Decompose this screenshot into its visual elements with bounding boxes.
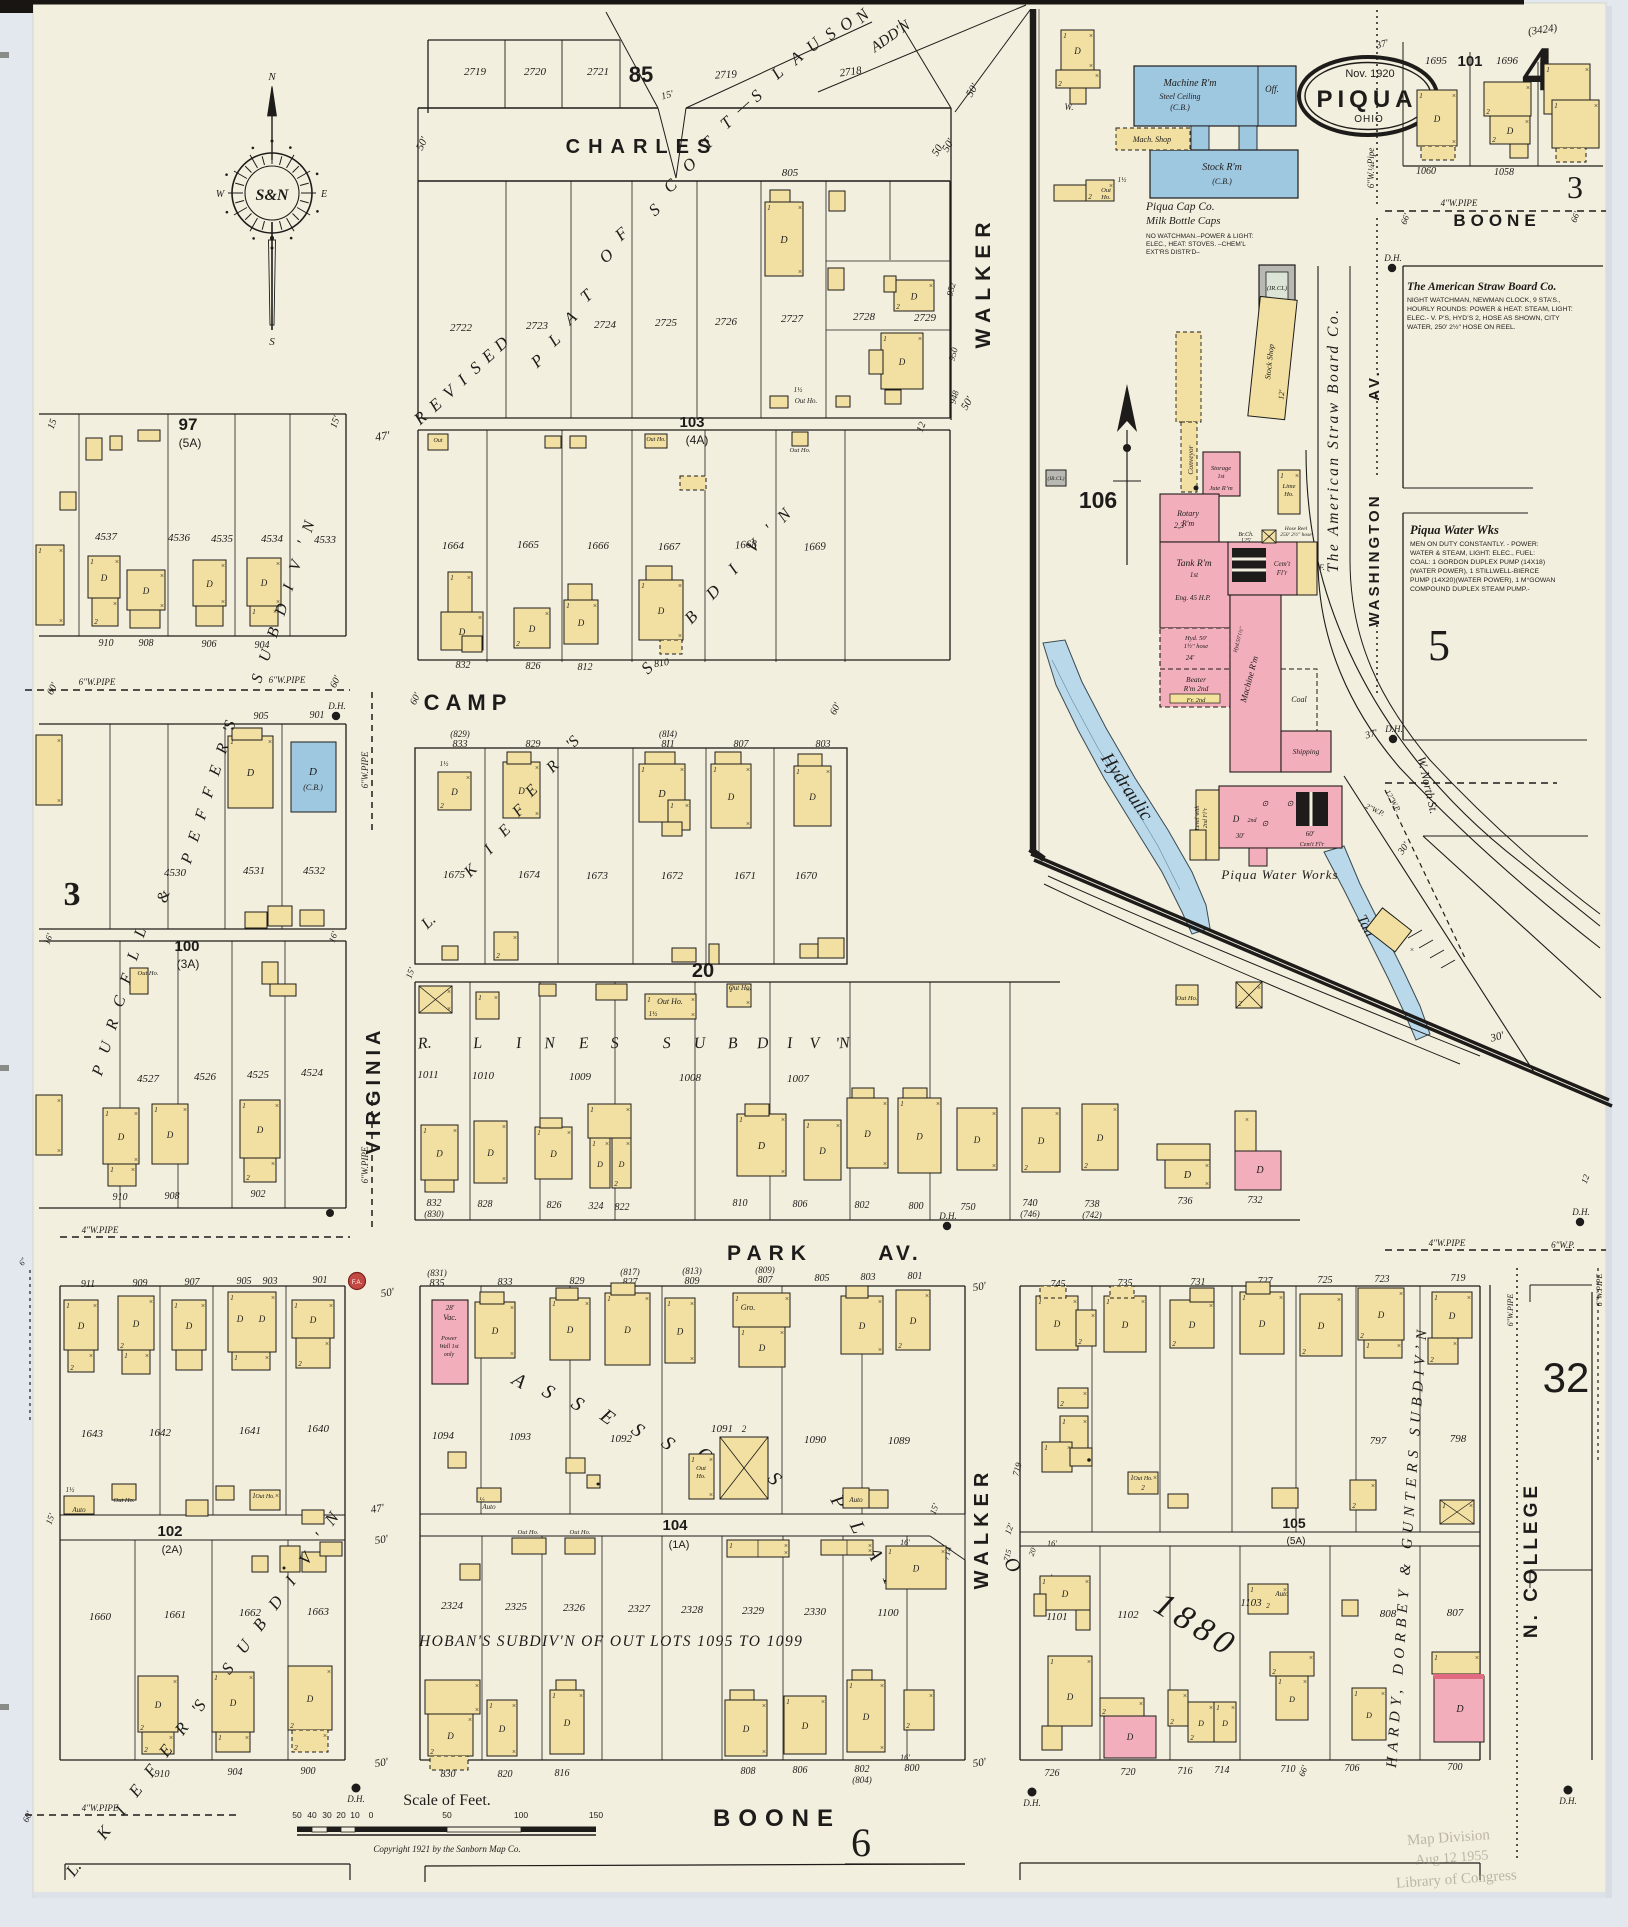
svg-text:6"W.PIPE: 6"W.PIPE <box>1506 1294 1515 1327</box>
svg-text:×: × <box>183 1105 187 1114</box>
svg-text:×: × <box>93 1301 97 1310</box>
svg-text:47': 47' <box>374 428 391 444</box>
svg-text:×: × <box>115 557 119 566</box>
svg-text:×: × <box>691 1010 695 1019</box>
svg-text:2nd Fl’r: 2nd Fl’r <box>1203 807 1209 828</box>
svg-text:822: 822 <box>615 1202 630 1213</box>
svg-text:×: × <box>567 1128 571 1137</box>
svg-text:D: D <box>229 1698 237 1708</box>
svg-text:D: D <box>1188 1320 1196 1330</box>
svg-text:×: × <box>1095 71 1099 80</box>
svg-text:×: × <box>512 1747 516 1756</box>
svg-text:2: 2 <box>496 952 500 960</box>
svg-text:Cem't: Cem't <box>1274 560 1291 568</box>
svg-text:832: 832 <box>456 660 471 671</box>
svg-text:807: 807 <box>758 1275 774 1286</box>
svg-text:×: × <box>323 1731 327 1740</box>
svg-text:Wall 1st: Wall 1st <box>439 1344 459 1350</box>
svg-text:D: D <box>1365 1711 1372 1720</box>
svg-text:×: × <box>1141 1297 1145 1306</box>
svg-text:(813): (813) <box>682 1266 702 1276</box>
svg-text:714: 714 <box>1215 1765 1230 1776</box>
svg-text:1: 1 <box>450 574 454 582</box>
svg-text:Out Ho.: Out Ho. <box>795 397 818 405</box>
svg-text:4536: 4536 <box>168 532 191 544</box>
svg-text:4524: 4524 <box>301 1067 324 1079</box>
svg-text:×: × <box>201 1301 205 1310</box>
svg-text:Auto: Auto <box>1274 1590 1289 1598</box>
svg-text:0: 0 <box>369 1810 374 1820</box>
svg-text:D: D <box>727 792 735 802</box>
svg-text:2,3: 2,3 <box>1174 521 1184 530</box>
svg-text:803: 803 <box>861 1272 876 1283</box>
svg-text:×: × <box>1091 1311 1095 1320</box>
svg-text:Out Ho.: Out Ho. <box>138 970 159 977</box>
svg-text:×: × <box>883 1159 887 1168</box>
svg-text:829: 829 <box>570 1276 585 1287</box>
svg-text:D: D <box>779 235 788 246</box>
svg-text:1695: 1695 <box>1425 55 1448 67</box>
svg-text:D.H.: D.H. <box>1384 724 1403 734</box>
svg-text:20: 20 <box>692 960 714 982</box>
svg-text:D.H.: D.H. <box>1022 1798 1041 1808</box>
svg-text:D: D <box>898 357 906 367</box>
svg-text:D: D <box>1506 126 1514 136</box>
svg-text:2725: 2725 <box>655 317 678 329</box>
svg-text:835: 835 <box>430 1278 445 1289</box>
svg-text:D: D <box>1258 1319 1266 1329</box>
svg-text:×: × <box>1399 1289 1403 1298</box>
svg-text:F.: F. <box>1318 563 1325 572</box>
svg-text:812: 812 <box>578 662 593 673</box>
svg-text:807: 807 <box>1447 1607 1464 1619</box>
svg-text:1663: 1663 <box>307 1606 330 1618</box>
svg-text:2325: 2325 <box>505 1601 528 1613</box>
svg-text:×: × <box>690 1354 694 1363</box>
svg-text:800: 800 <box>905 1763 920 1774</box>
svg-text:Out Ho.: Out Ho. <box>570 1529 591 1536</box>
svg-text:1696: 1696 <box>1496 55 1519 67</box>
svg-text:×: × <box>1073 1297 1077 1306</box>
svg-text:1: 1 <box>691 1456 695 1464</box>
svg-text:1: 1 <box>741 1329 745 1337</box>
svg-text:D: D <box>577 618 585 628</box>
svg-text:WASHINGTON: WASHINGTON <box>1366 493 1383 626</box>
svg-text:Copyright 1921 by the Sanborn: Copyright 1921 by the Sanborn Map Co. <box>373 1844 520 1854</box>
svg-text:×: × <box>57 736 61 745</box>
svg-text:1673: 1673 <box>586 870 609 882</box>
svg-text:1½: 1½ <box>649 1010 659 1018</box>
svg-text:903: 903 <box>263 1276 278 1287</box>
svg-text:1½: 1½ <box>66 1486 76 1494</box>
svg-text:×: × <box>1526 83 1530 92</box>
svg-text:×: × <box>626 1105 630 1114</box>
svg-text:2: 2 <box>1058 80 1062 88</box>
svg-text:738: 738 <box>1085 1199 1100 1210</box>
svg-text:×: × <box>468 1715 472 1724</box>
svg-text:D: D <box>657 606 665 616</box>
svg-text:Hyd. 50': Hyd. 50' <box>1184 635 1208 642</box>
svg-text:1007: 1007 <box>787 1073 810 1085</box>
svg-text:Conveyor: Conveyor <box>1186 445 1195 474</box>
svg-text:806: 806 <box>793 1199 808 1210</box>
svg-text:×: × <box>1205 1161 1209 1170</box>
svg-text:706: 706 <box>1345 1763 1360 1774</box>
svg-text:×: × <box>1153 1473 1157 1482</box>
svg-text:D: D <box>862 1712 870 1722</box>
svg-text:×: × <box>785 1294 789 1303</box>
svg-text:WALKER: WALKER <box>972 216 995 349</box>
svg-text:1: 1 <box>1546 66 1550 74</box>
svg-text:47': 47' <box>370 1502 386 1516</box>
svg-text:1: 1 <box>105 1110 109 1118</box>
svg-text:Lime: Lime <box>1282 483 1296 490</box>
svg-text:E: E <box>320 189 327 200</box>
svg-text:908: 908 <box>165 1191 180 1202</box>
svg-text:1: 1 <box>1434 1654 1438 1662</box>
svg-text:1674: 1674 <box>518 869 541 881</box>
svg-text:Cem't Fl'r: Cem't Fl'r <box>1300 842 1325 848</box>
svg-text:D: D <box>309 1315 317 1325</box>
svg-text:30': 30' <box>1235 832 1245 840</box>
svg-text:2: 2 <box>70 1364 74 1372</box>
svg-text:D: D <box>1066 1692 1074 1702</box>
svg-text:905: 905 <box>237 1276 252 1287</box>
svg-text:1669: 1669 <box>804 540 827 553</box>
svg-text:2: 2 <box>440 802 444 810</box>
svg-text:1: 1 <box>735 1295 739 1303</box>
svg-text:904: 904 <box>228 1767 243 1778</box>
svg-text:2: 2 <box>1024 1164 1028 1172</box>
svg-text:D: D <box>801 1721 809 1731</box>
svg-text:×: × <box>1475 1653 1479 1662</box>
svg-text:Power: Power <box>440 1336 457 1342</box>
svg-text:Storage: Storage <box>1211 465 1231 472</box>
svg-text:×: × <box>1083 1389 1087 1398</box>
svg-text:×: × <box>798 203 802 212</box>
svg-text:2723: 2723 <box>526 320 549 332</box>
svg-text:Out Ho.: Out Ho. <box>1133 1476 1152 1482</box>
svg-text:Scale of Feet.: Scale of Feet. <box>403 1792 491 1809</box>
svg-text:Gro.: Gro. <box>741 1303 756 1312</box>
svg-text:2329: 2329 <box>742 1605 765 1617</box>
svg-text:1: 1 <box>1044 1444 1048 1452</box>
svg-text:2327: 2327 <box>628 1603 651 1615</box>
svg-text:816: 816 <box>555 1768 570 1779</box>
svg-text:1: 1 <box>1434 1294 1438 1302</box>
svg-text:D: D <box>256 1125 264 1135</box>
svg-text:D: D <box>166 1130 174 1140</box>
svg-text:×: × <box>1231 1703 1235 1712</box>
svg-text:2: 2 <box>1172 1340 1176 1348</box>
svg-text:1: 1 <box>1216 1704 1220 1712</box>
svg-text:×: × <box>271 1293 275 1302</box>
svg-text:CAMP: CAMP <box>424 690 513 715</box>
svg-text:1010: 1010 <box>472 1070 495 1082</box>
svg-text:2: 2 <box>1102 1708 1106 1716</box>
svg-text:×: × <box>134 1155 138 1164</box>
svg-text:The American Straw Board Co.: The American Straw Board Co. <box>1407 281 1556 293</box>
svg-text:732: 732 <box>1248 1195 1263 1206</box>
svg-text:×: × <box>868 1546 872 1555</box>
svg-text:×: × <box>925 1291 929 1300</box>
svg-text:2: 2 <box>1486 108 1490 116</box>
svg-text:F.A.: F.A. <box>352 1280 363 1286</box>
svg-text:×: × <box>160 601 164 610</box>
svg-text:Auto: Auto <box>848 1496 863 1504</box>
svg-text:×: × <box>880 1743 884 1752</box>
svg-text:1640: 1640 <box>307 1423 330 1435</box>
svg-text:Tank R'm: Tank R'm <box>1176 559 1211 569</box>
svg-text:829: 829 <box>526 739 541 750</box>
svg-text:×: × <box>1257 983 1261 992</box>
svg-text:1: 1 <box>1366 1342 1370 1350</box>
svg-text:×: × <box>878 1297 882 1306</box>
svg-text:1: 1 <box>1278 1678 1282 1686</box>
svg-text:×: × <box>762 1747 766 1756</box>
svg-text:×: × <box>1452 91 1456 100</box>
svg-text:×: × <box>709 1490 713 1499</box>
svg-text:D: D <box>915 1132 923 1142</box>
svg-text:D: D <box>1053 1319 1061 1329</box>
svg-text:×: × <box>271 1159 275 1168</box>
svg-text:×: × <box>678 631 682 640</box>
svg-text:Out Ho.: Out Ho. <box>1177 995 1198 1002</box>
svg-text:2: 2 <box>144 1746 148 1754</box>
svg-text:VIRGINIA: VIRGINIA <box>363 1026 385 1155</box>
svg-text:×: × <box>325 1339 329 1348</box>
svg-text:EXT'RS DISTR'D–: EXT'RS DISTR'D– <box>1146 249 1200 256</box>
svg-text:×: × <box>746 998 750 1007</box>
svg-text:1: 1 <box>252 608 256 616</box>
svg-text:×: × <box>502 1174 506 1183</box>
svg-text:832: 832 <box>427 1198 442 1209</box>
svg-text:(809): (809) <box>755 1265 775 1275</box>
svg-text:×: × <box>1205 1179 1209 1188</box>
svg-text:4535: 4535 <box>211 533 234 545</box>
svg-text:D: D <box>1455 1704 1464 1715</box>
svg-text:D: D <box>1061 1589 1069 1599</box>
svg-text:2: 2 <box>294 1744 298 1752</box>
svg-text:32: 32 <box>1543 1354 1590 1401</box>
svg-text:Jute R’m: Jute R’m <box>1209 485 1233 492</box>
svg-text:CHARLES: CHARLES <box>566 136 719 158</box>
svg-text:D.H.: D.H. <box>938 1211 957 1221</box>
svg-text:731: 731 <box>1191 1277 1206 1288</box>
svg-text:D: D <box>566 1325 574 1335</box>
svg-text:Piqua Water Works: Piqua Water Works <box>1220 867 1338 882</box>
svg-text:D: D <box>676 1327 684 1337</box>
svg-text:1660: 1660 <box>89 1611 112 1623</box>
svg-text:902: 902 <box>251 1189 266 1200</box>
svg-text:10: 10 <box>350 1810 360 1820</box>
svg-text:WATER, 250′ 2½″ HOSE ON REEL.: WATER, 250′ 2½″ HOSE ON REEL. <box>1407 323 1516 331</box>
svg-text:324: 324 <box>588 1201 604 1212</box>
svg-text:D: D <box>486 1148 494 1158</box>
svg-text:(2A): (2A) <box>162 1544 183 1556</box>
svg-text:50': 50' <box>972 1280 988 1294</box>
svg-text:1089: 1089 <box>888 1435 911 1447</box>
svg-text:×: × <box>781 1167 785 1176</box>
svg-text:50': 50' <box>374 1756 390 1770</box>
svg-text:×: × <box>453 1126 457 1135</box>
svg-text:50': 50' <box>972 1756 988 1770</box>
svg-text:828: 828 <box>478 1199 493 1210</box>
svg-text:×: × <box>535 809 539 818</box>
svg-text:×: × <box>936 1099 940 1108</box>
svg-text:×: × <box>1594 101 1598 110</box>
svg-text:1664: 1664 <box>442 540 465 552</box>
svg-text:×: × <box>221 561 225 570</box>
svg-text:2: 2 <box>742 1424 747 1434</box>
svg-text:D: D <box>100 573 108 583</box>
svg-text:1: 1 <box>1042 1578 1046 1586</box>
svg-text:1094: 1094 <box>432 1430 455 1442</box>
svg-text:S: S <box>610 1035 619 1053</box>
svg-text:D: D <box>306 1694 314 1704</box>
svg-text:D: D <box>1317 1321 1325 1331</box>
svg-text:D: D <box>1255 1165 1264 1176</box>
svg-text:×: × <box>762 1701 766 1710</box>
svg-text:×: × <box>475 1681 479 1690</box>
svg-text:×: × <box>535 763 539 772</box>
svg-text:808: 808 <box>1380 1608 1397 1620</box>
svg-text:COAL: 1 GORDON DUPLEX PUMP (14: COAL: 1 GORDON DUPLEX PUMP (14X18) <box>1410 559 1545 566</box>
svg-text:Steel Ceiling: Steel Ceiling <box>1159 92 1200 101</box>
svg-text:2726: 2726 <box>715 316 738 328</box>
svg-text:750: 750 <box>961 1202 976 1213</box>
svg-text:×: × <box>883 1099 887 1108</box>
svg-text:1: 1 <box>806 1122 810 1130</box>
svg-text:1: 1 <box>1419 92 1423 100</box>
svg-text:3: 3 <box>64 876 81 913</box>
svg-text:N: N <box>267 71 276 83</box>
svg-text:D: D <box>246 768 255 779</box>
svg-text:28′: 28′ <box>446 1304 455 1312</box>
svg-text:1½: 1½ <box>1118 176 1128 184</box>
svg-text:2: 2 <box>94 618 98 626</box>
svg-text:2: 2 <box>1492 136 1496 144</box>
svg-text:4532: 4532 <box>303 865 326 877</box>
svg-text:×: × <box>510 1303 514 1312</box>
svg-text:The American Straw Board Co.: The American Straw Board Co. <box>1325 307 1342 572</box>
svg-text:×: × <box>57 1146 61 1155</box>
svg-text:D: D <box>498 1724 506 1734</box>
svg-text:2: 2 <box>430 1748 434 1756</box>
svg-text:×: × <box>1295 471 1299 480</box>
svg-text:1: 1 <box>786 1698 790 1706</box>
svg-text:4"W.PIPE: 4"W.PIPE <box>1429 1238 1466 1248</box>
svg-text:OHIO: OHIO <box>1354 114 1384 125</box>
svg-text:Out Ho.: Out Ho. <box>729 984 752 992</box>
svg-text:1667: 1667 <box>658 541 681 553</box>
svg-text:×: × <box>1303 1677 1307 1686</box>
svg-text:(1A): (1A) <box>669 1539 690 1551</box>
svg-text:1: 1 <box>1062 1418 1066 1426</box>
svg-text:D: D <box>258 1314 266 1324</box>
svg-text:(5A): (5A) <box>179 436 202 450</box>
svg-text:4525: 4525 <box>247 1069 270 1081</box>
svg-text:D: D <box>154 1700 162 1710</box>
svg-text:1090: 1090 <box>804 1434 827 1446</box>
svg-text:D: D <box>205 579 213 589</box>
svg-text:Level with: Level with <box>1195 806 1201 832</box>
svg-text:×: × <box>160 571 164 580</box>
svg-text:×: × <box>1083 1417 1087 1426</box>
svg-text:D: D <box>236 1314 244 1324</box>
svg-text:4537: 4537 <box>95 531 118 543</box>
svg-text:Machine R'm: Machine R'm <box>1163 78 1217 89</box>
svg-text:D: D <box>1197 1719 1204 1728</box>
svg-text:1: 1 <box>230 1294 234 1302</box>
svg-text:833: 833 <box>498 1277 513 1288</box>
svg-text:HOURLY ROUNDS: POWER & HEAT: S: HOURLY ROUNDS: POWER & HEAT: STEAM, LIGH… <box>1407 306 1573 313</box>
svg-text:807: 807 <box>734 739 750 750</box>
svg-text:×: × <box>626 1139 630 1148</box>
svg-text:D: D <box>450 787 458 797</box>
svg-text:910: 910 <box>113 1192 128 1203</box>
svg-text:1: 1 <box>174 1302 178 1310</box>
svg-text:WATER & STEAM, LIGHT: ELEC., F: WATER & STEAM, LIGHT: ELEC., FUEL: <box>1410 550 1535 557</box>
svg-text:Off.: Off. <box>1265 84 1279 94</box>
svg-text:×: × <box>1113 1105 1117 1114</box>
svg-text:×: × <box>275 1491 279 1500</box>
svg-text:40: 40 <box>307 1810 317 1820</box>
svg-text:(C.B.): (C.B.) <box>303 783 323 792</box>
svg-text:×: × <box>1410 945 1414 954</box>
svg-text:×: × <box>929 281 933 290</box>
svg-text:ELEC.- V. P’S, HYD’S 2, HOSE A: ELEC.- V. P’S, HYD’S 2, HOSE AS SHOWN, C… <box>1407 315 1560 322</box>
svg-text:MEN ON DUTY CONSTANTLY. - POWE: MEN ON DUTY CONSTANTLY. - POWER: <box>1410 541 1539 548</box>
svg-text:×: × <box>878 1345 882 1354</box>
svg-text:1101: 1101 <box>1046 1611 1067 1623</box>
svg-text:Vac.: Vac. <box>443 1313 457 1322</box>
svg-text:16': 16' <box>900 1538 910 1547</box>
svg-text:2728: 2728 <box>853 311 876 323</box>
svg-text:(830): (830) <box>424 1209 444 1219</box>
svg-text:1670: 1670 <box>795 870 818 882</box>
svg-text:723: 723 <box>1375 1274 1390 1285</box>
svg-text:×: × <box>579 1691 583 1700</box>
svg-text:1: 1 <box>489 1702 493 1710</box>
svg-text:(817): (817) <box>620 1267 640 1277</box>
svg-text:×: × <box>1585 65 1589 74</box>
svg-text:2: 2 <box>898 1342 902 1350</box>
svg-text:1: 1 <box>667 1300 671 1308</box>
svg-text:Milk Bottle Caps: Milk Bottle Caps <box>1145 215 1221 227</box>
svg-text:⊙: ⊙ <box>1262 819 1269 828</box>
svg-text:(831): (831) <box>427 1268 447 1278</box>
svg-text:Auto: Auto <box>71 1506 86 1514</box>
svg-text:103: 103 <box>679 414 704 431</box>
svg-text:1: 1 <box>423 1127 427 1135</box>
svg-text:736: 736 <box>1178 1196 1193 1207</box>
svg-text:1: 1 <box>590 1106 594 1114</box>
svg-text:6"W.PIPE: 6"W.PIPE <box>360 751 370 788</box>
svg-text:D: D <box>1288 1695 1295 1704</box>
svg-text:Piqua Cap Co.: Piqua Cap Co. <box>1145 201 1215 213</box>
svg-text:2: 2 <box>1352 1502 1356 1510</box>
svg-text:1: 1 <box>552 1692 556 1700</box>
svg-text:Out: Out <box>434 438 443 444</box>
svg-text:2: 2 <box>290 1722 294 1730</box>
svg-text:L: L <box>472 1035 483 1053</box>
svg-text:1666: 1666 <box>587 540 610 552</box>
svg-text:D: D <box>142 586 150 596</box>
svg-text:D: D <box>912 1564 920 1574</box>
svg-text:×: × <box>1139 1699 1143 1708</box>
svg-text:2: 2 <box>1084 1162 1088 1170</box>
